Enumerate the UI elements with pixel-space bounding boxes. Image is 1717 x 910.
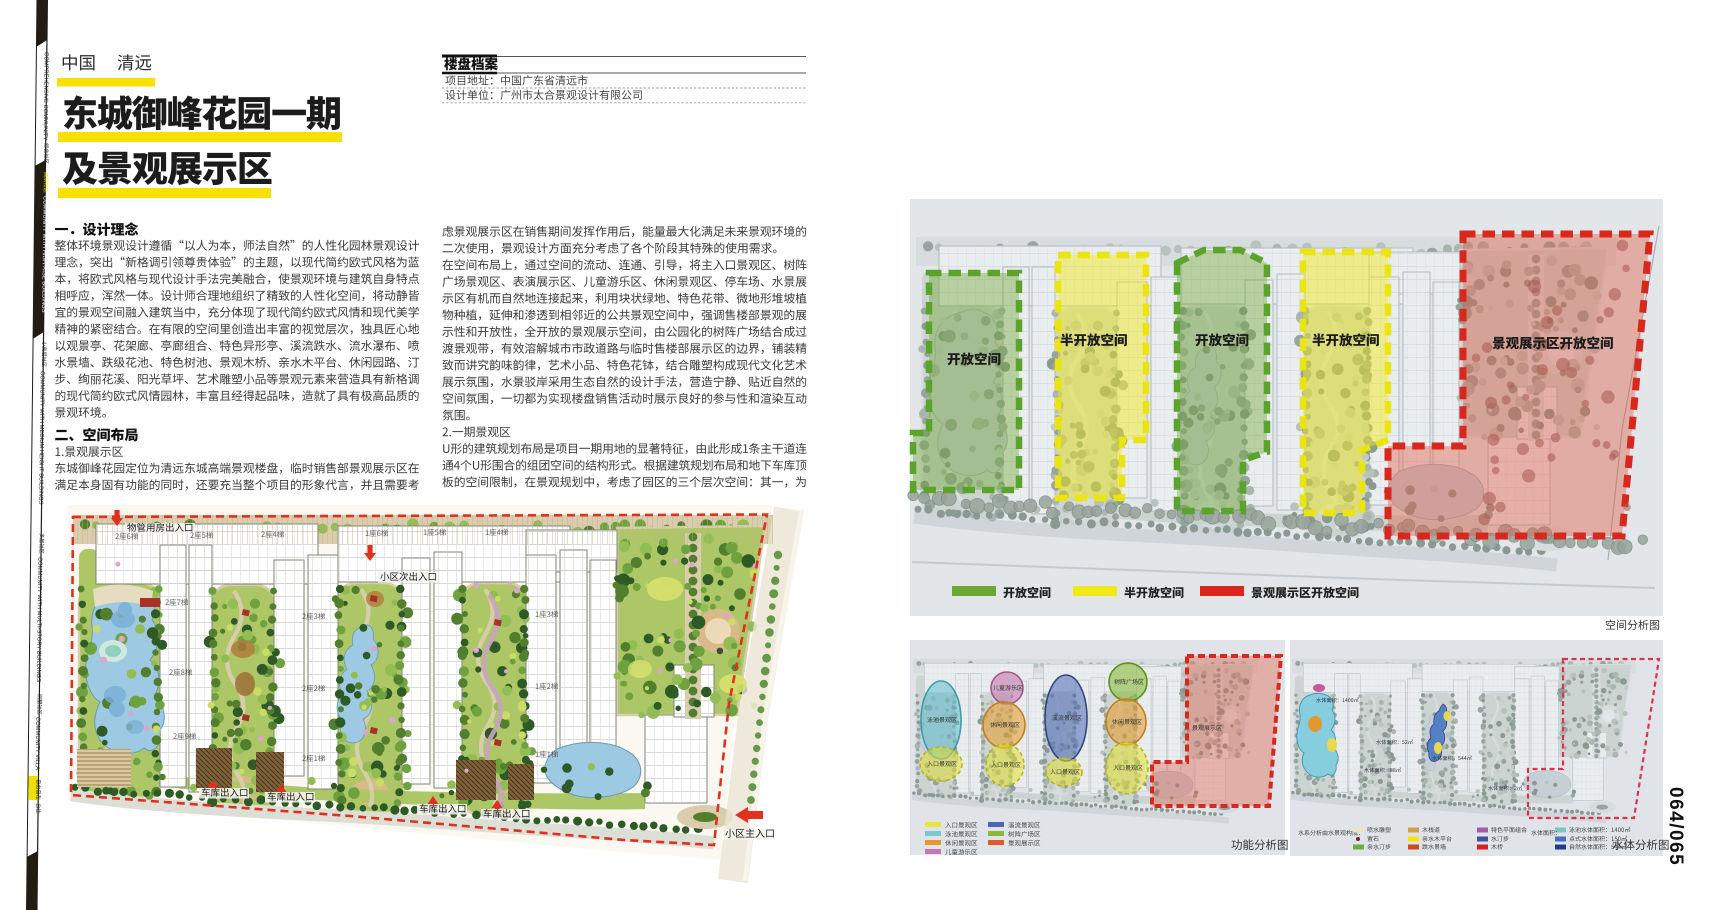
svg-text:064/065: 064/065 [1665,787,1686,866]
svg-text:COMMUNITY VILLA: COMMUNITY VILLA [34,717,41,770]
svg-text:COMPREHENSIVE COMMUNITY: COMPREHENSIVE COMMUNITY [42,52,49,140]
